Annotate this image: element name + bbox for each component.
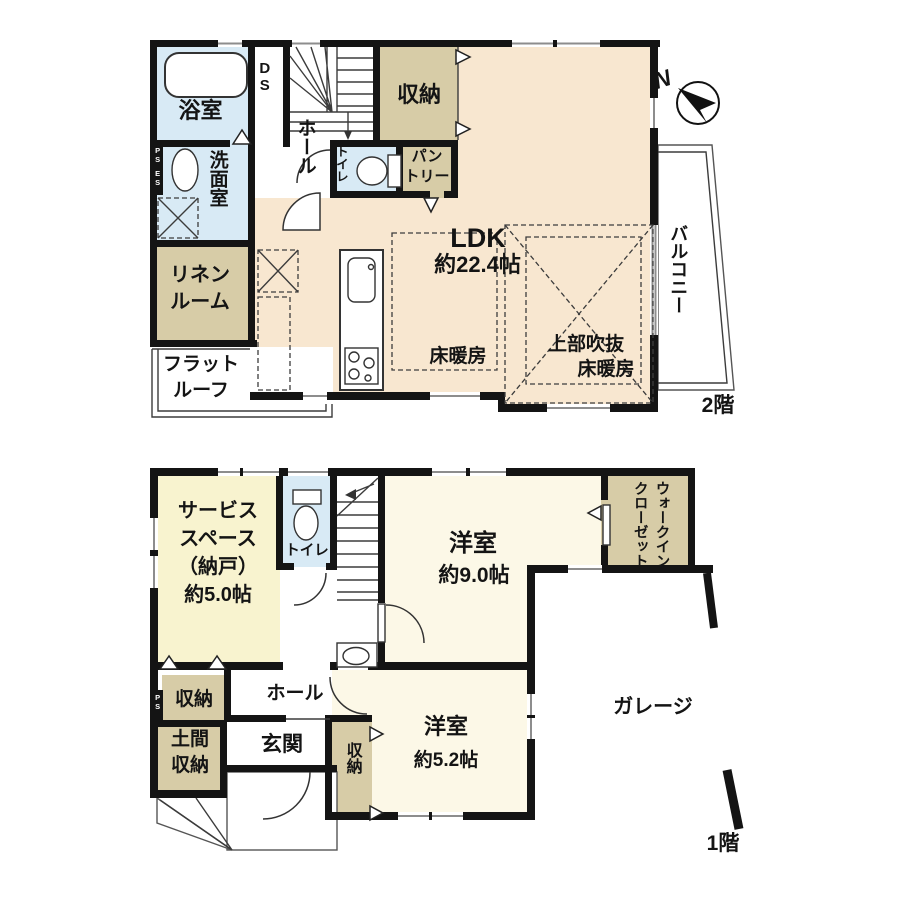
label-pantry: パン トリー [401,147,453,188]
label-flat-roof: フラット ルーフ [157,352,245,403]
label-floor2: 2階 [688,392,748,420]
label-bedroom5-size: 約5.2帖 [386,748,506,774]
label-ldk-size: 約22.4帖 [420,250,535,280]
stairs-1f [337,478,378,600]
label-washroom: 洗面室 [204,150,230,207]
label-floor1: 1階 [693,830,753,858]
toilet-door-1f [294,573,326,605]
label-service-space: サービス スペース （納戸） 約5.0帖 [156,497,280,609]
label-pipe-space-1f: PS [152,693,162,711]
kitchen-island [340,250,383,390]
label-hall-1f: ホール [259,681,331,707]
washbasin-1f [337,643,377,667]
bathtub [165,53,247,97]
label-toilet-1f: トイレ [282,542,332,562]
label-bedroom5-name: 洋室 [396,712,496,742]
label-entrance: 玄関 [241,731,323,759]
label-duct-space: DS [254,60,274,94]
label-hall-storage: 収納 [163,687,225,713]
label-doma-storage: 土間 収納 [156,727,224,778]
label-bath: 浴室 [163,96,238,126]
label-electric-space-2f: ES [152,169,162,187]
washbasin-2f [172,149,198,191]
label-bedroom9-name: 洋室 [418,528,528,560]
label-bedroom5-storage: 収納 [341,742,363,774]
label-hall-2f: ホール [292,118,318,175]
label-pipe-space-2f: PS [152,146,162,164]
label-toilet-2f: トイレ [332,145,349,183]
toilet-fixture-2f [357,155,401,187]
label-storage-2f: 収納 [383,80,455,110]
label-balcony: バルコニー [666,224,690,314]
floorplan-canvas: 浴室 DS ホール 収納 トイレ パン トリー 洗面室 リネン ルーム フラット… [0,0,900,900]
label-bedroom9-size: 約9.0帖 [404,562,544,590]
label-void-above: 上部吹抜 [530,332,642,358]
label-linen-room: リネン ルーム [154,262,246,316]
compass-icon [677,82,719,124]
label-floor-heating-left: 床暖房 [408,344,508,370]
label-garage: ガレージ [607,694,699,721]
label-walk-in-closet: ウォークイン クローゼット [628,478,672,570]
label-floor-heating-right: 床暖房 [554,357,658,383]
